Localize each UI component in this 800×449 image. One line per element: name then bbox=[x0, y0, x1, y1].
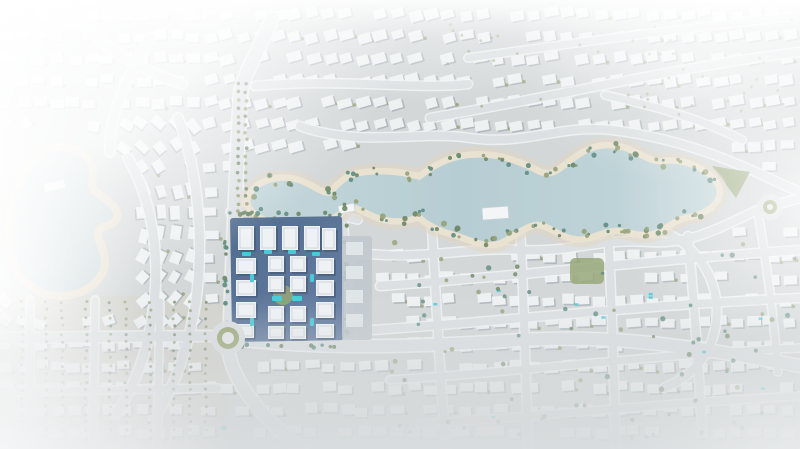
tree-icon bbox=[571, 163, 576, 168]
tree-icon bbox=[713, 178, 716, 181]
tree-icon bbox=[205, 340, 208, 343]
tree-icon bbox=[148, 421, 151, 424]
tree-icon bbox=[707, 178, 713, 184]
roundabout-southwest bbox=[211, 321, 245, 355]
tree-icon bbox=[544, 172, 549, 177]
tree-icon bbox=[656, 230, 661, 235]
villa bbox=[477, 293, 493, 305]
tree-icon bbox=[296, 212, 300, 216]
annex-villa bbox=[346, 314, 363, 327]
tree-icon bbox=[327, 190, 331, 194]
tree-icon bbox=[173, 357, 176, 360]
tree-icon bbox=[680, 372, 684, 376]
tree-icon bbox=[205, 308, 208, 311]
villa bbox=[626, 318, 643, 329]
tree-icon bbox=[84, 404, 87, 407]
villa bbox=[373, 426, 389, 438]
tree-icon bbox=[279, 344, 283, 348]
tree-icon bbox=[205, 301, 208, 304]
tree-icon bbox=[109, 325, 112, 328]
villa-pool bbox=[433, 303, 437, 306]
tree-icon bbox=[61, 365, 64, 368]
villa bbox=[627, 7, 642, 20]
tree-icon bbox=[236, 186, 240, 190]
tree-icon bbox=[45, 324, 48, 327]
villa bbox=[117, 360, 131, 370]
tree-icon bbox=[173, 324, 176, 327]
tree-icon bbox=[332, 192, 336, 196]
tree-icon bbox=[172, 388, 175, 391]
villa bbox=[34, 29, 48, 41]
villa bbox=[187, 97, 201, 109]
tree-icon bbox=[451, 233, 456, 238]
tree-icon bbox=[172, 317, 175, 320]
tree-icon bbox=[474, 238, 477, 241]
tree-icon bbox=[21, 356, 24, 359]
tree-icon bbox=[479, 39, 482, 42]
tree-icon bbox=[629, 435, 634, 440]
tree-icon bbox=[613, 141, 618, 146]
villa bbox=[732, 227, 748, 238]
tree-icon bbox=[693, 168, 697, 172]
villa bbox=[575, 7, 590, 20]
villa bbox=[70, 55, 84, 67]
tree-icon bbox=[435, 227, 439, 231]
tree-icon bbox=[188, 381, 191, 384]
tree-icon bbox=[342, 206, 347, 211]
villa bbox=[391, 427, 405, 439]
tree-icon bbox=[606, 230, 609, 233]
tree-icon bbox=[237, 115, 241, 119]
tree-icon bbox=[501, 362, 506, 367]
tree-icon bbox=[549, 171, 552, 174]
tree-icon bbox=[21, 308, 24, 311]
tree-icon bbox=[109, 421, 112, 424]
villa bbox=[205, 187, 219, 199]
tree-icon bbox=[108, 349, 111, 352]
tree-icon bbox=[487, 390, 491, 394]
tree-icon bbox=[148, 301, 151, 304]
tree-icon bbox=[149, 309, 152, 312]
villa bbox=[49, 429, 66, 440]
tree-icon bbox=[109, 333, 112, 336]
tree-icon bbox=[496, 420, 500, 424]
tree-icon bbox=[500, 309, 504, 313]
annex-villa bbox=[346, 266, 363, 279]
villa bbox=[101, 74, 115, 84]
villa bbox=[460, 10, 474, 23]
tree-icon bbox=[541, 414, 547, 420]
villa bbox=[169, 404, 183, 416]
tree-icon bbox=[61, 404, 64, 407]
tree-icon bbox=[84, 308, 87, 311]
tree-icon bbox=[654, 157, 658, 161]
tree-icon bbox=[506, 162, 511, 167]
tree-icon bbox=[60, 429, 63, 432]
tree-icon bbox=[61, 396, 64, 399]
tree-icon bbox=[173, 301, 176, 304]
villa bbox=[50, 33, 64, 43]
villa bbox=[407, 359, 423, 371]
tree-icon bbox=[188, 317, 191, 320]
tree-icon bbox=[45, 372, 48, 375]
tree-icon bbox=[173, 364, 176, 367]
tree-icon bbox=[542, 221, 545, 224]
villa bbox=[371, 381, 386, 393]
cluster-pool bbox=[272, 296, 282, 301]
tree-icon bbox=[44, 300, 47, 303]
tree-icon bbox=[539, 98, 542, 101]
tree-icon bbox=[515, 264, 520, 269]
tree-icon bbox=[723, 329, 727, 333]
tree-icon bbox=[627, 94, 630, 97]
tree-icon bbox=[793, 257, 797, 261]
tree-icon bbox=[204, 332, 207, 335]
tree-icon bbox=[516, 52, 519, 55]
tree-icon bbox=[597, 50, 600, 53]
tree-icon bbox=[188, 324, 191, 327]
tree-icon bbox=[238, 212, 243, 217]
tree-icon bbox=[750, 85, 753, 88]
tree-icon bbox=[578, 43, 581, 46]
tree-icon bbox=[418, 210, 421, 213]
villa bbox=[271, 359, 288, 371]
tree-icon bbox=[44, 413, 47, 416]
tree-icon bbox=[188, 300, 191, 303]
tree-icon bbox=[45, 357, 48, 360]
tree-icon bbox=[85, 340, 88, 343]
tree-icon bbox=[608, 17, 611, 20]
tree-icon bbox=[108, 301, 111, 304]
tree-icon bbox=[108, 396, 111, 399]
tree-icon bbox=[500, 158, 504, 162]
villa bbox=[731, 319, 745, 330]
tree-icon bbox=[149, 365, 152, 368]
tree-icon bbox=[20, 381, 23, 384]
villa bbox=[137, 404, 150, 416]
tree-icon bbox=[108, 388, 111, 391]
tree-icon bbox=[109, 405, 112, 408]
villa bbox=[560, 97, 576, 111]
tree-icon bbox=[780, 260, 784, 264]
tree-icon bbox=[284, 212, 288, 216]
tree-icon bbox=[506, 229, 509, 232]
tree-icon bbox=[702, 172, 705, 175]
tree-icon bbox=[61, 373, 64, 376]
tree-icon bbox=[61, 324, 64, 327]
tree-icon bbox=[172, 349, 175, 352]
tree-icon bbox=[259, 207, 263, 211]
villa bbox=[170, 96, 184, 107]
tree-icon bbox=[740, 426, 744, 430]
tree-icon bbox=[582, 229, 587, 234]
cluster-pool bbox=[250, 274, 254, 282]
tree-icon bbox=[646, 93, 649, 96]
tree-icon bbox=[60, 413, 63, 416]
road bbox=[255, 83, 468, 86]
annex-villa bbox=[346, 242, 363, 255]
tree-icon bbox=[85, 349, 88, 352]
tree-icon bbox=[457, 235, 460, 238]
tree-icon bbox=[422, 313, 426, 317]
tree-icon bbox=[148, 348, 151, 351]
tree-icon bbox=[462, 426, 466, 430]
tree-icon bbox=[189, 420, 192, 423]
villa bbox=[359, 425, 374, 437]
tree-icon bbox=[172, 428, 175, 431]
tree-icon bbox=[148, 396, 151, 399]
tree-icon bbox=[720, 253, 724, 257]
villa-pool bbox=[759, 317, 763, 320]
tree-icon bbox=[646, 98, 649, 101]
tree-icon bbox=[574, 403, 578, 407]
tree-icon bbox=[484, 157, 488, 161]
villa bbox=[784, 275, 799, 286]
villa bbox=[0, 99, 13, 110]
tree-icon bbox=[482, 276, 485, 279]
tree-icon bbox=[390, 370, 394, 374]
tree-icon bbox=[446, 62, 449, 65]
tree-icon bbox=[676, 158, 680, 162]
tree-icon bbox=[698, 214, 704, 220]
tree-icon bbox=[149, 324, 152, 327]
tree-icon bbox=[659, 387, 665, 393]
tree-icon bbox=[612, 308, 616, 312]
tree-icon bbox=[452, 29, 455, 32]
tree-icon bbox=[662, 230, 667, 235]
tree-icon bbox=[189, 309, 192, 312]
villa bbox=[86, 78, 99, 88]
tree-icon bbox=[490, 36, 493, 39]
villa bbox=[186, 33, 201, 43]
tree-icon bbox=[754, 349, 758, 353]
tree-icon bbox=[60, 301, 63, 304]
tree-icon bbox=[60, 389, 63, 392]
tree-icon bbox=[45, 396, 48, 399]
tree-icon bbox=[605, 374, 610, 379]
tree-icon bbox=[726, 100, 729, 103]
tree-icon bbox=[578, 378, 582, 382]
tree-icon bbox=[244, 82, 248, 86]
tree-icon bbox=[755, 78, 758, 81]
tree-icon bbox=[205, 405, 208, 408]
tree-icon bbox=[204, 317, 207, 320]
tree-icon bbox=[245, 99, 249, 103]
tree-icon bbox=[84, 357, 87, 360]
tree-icon bbox=[84, 325, 87, 328]
tree-icon bbox=[204, 372, 207, 375]
villa bbox=[459, 383, 474, 393]
villa bbox=[168, 206, 180, 222]
tree-icon bbox=[188, 357, 191, 360]
tree-icon bbox=[320, 343, 323, 346]
tree-icon bbox=[421, 300, 425, 304]
tree-icon bbox=[417, 322, 421, 326]
villa bbox=[82, 100, 97, 110]
tree-icon bbox=[237, 121, 241, 125]
tree-icon bbox=[109, 317, 112, 320]
tree-icon bbox=[21, 429, 24, 432]
tree-icon bbox=[385, 219, 388, 222]
villa bbox=[1, 428, 14, 439]
tree-icon bbox=[172, 308, 175, 311]
tree-icon bbox=[109, 372, 112, 375]
tree-icon bbox=[244, 123, 248, 127]
tree-icon bbox=[402, 378, 406, 382]
tree-icon bbox=[85, 300, 88, 303]
tree-icon bbox=[244, 342, 249, 347]
tree-icon bbox=[651, 433, 655, 437]
villa bbox=[254, 428, 267, 439]
tree-icon bbox=[449, 23, 452, 26]
tree-icon bbox=[237, 203, 241, 207]
villa bbox=[185, 12, 201, 22]
tree-icon bbox=[648, 53, 651, 56]
tree-icon bbox=[21, 389, 24, 392]
annex-villa bbox=[346, 290, 363, 303]
tree-icon bbox=[60, 437, 63, 440]
cluster-pool bbox=[288, 250, 296, 254]
tree-icon bbox=[85, 381, 88, 384]
tree-icon bbox=[109, 429, 112, 432]
tree-icon bbox=[205, 325, 208, 328]
tree-icon bbox=[457, 155, 460, 158]
tree-icon bbox=[205, 428, 208, 431]
tree-icon bbox=[758, 56, 761, 59]
tree-icon bbox=[268, 174, 271, 177]
villa bbox=[392, 293, 409, 304]
tree-icon bbox=[701, 75, 704, 78]
tree-icon bbox=[109, 356, 112, 359]
tree-icon bbox=[526, 163, 531, 168]
tree-icon bbox=[454, 228, 458, 232]
tree-icon bbox=[149, 429, 152, 432]
tree-icon bbox=[189, 340, 192, 343]
tree-icon bbox=[583, 404, 587, 408]
tree-icon bbox=[492, 236, 497, 241]
tree-icon bbox=[619, 327, 623, 331]
tree-icon bbox=[567, 164, 570, 167]
tree-icon bbox=[61, 381, 64, 384]
tree-icon bbox=[44, 404, 47, 407]
tree-icon bbox=[603, 223, 608, 228]
villa bbox=[119, 33, 133, 45]
tree-icon bbox=[172, 373, 175, 376]
villa bbox=[442, 293, 456, 305]
villa bbox=[155, 204, 166, 220]
tree-icon bbox=[20, 405, 23, 408]
villa bbox=[137, 77, 153, 88]
villa bbox=[170, 223, 184, 240]
tree-icon bbox=[85, 372, 88, 375]
tree-icon bbox=[345, 223, 349, 227]
tree-icon bbox=[669, 39, 672, 42]
villa bbox=[474, 382, 490, 394]
tree-icon bbox=[108, 340, 111, 343]
tree-icon bbox=[732, 421, 736, 425]
tree-icon bbox=[20, 436, 23, 439]
tree-icon bbox=[730, 253, 735, 258]
tree-icon bbox=[108, 309, 111, 312]
tree-icon bbox=[173, 333, 176, 336]
tree-icon bbox=[484, 243, 489, 248]
villa bbox=[53, 406, 66, 418]
villa bbox=[37, 359, 50, 370]
tree-icon bbox=[593, 311, 598, 316]
tree-icon bbox=[253, 186, 259, 192]
tree-icon bbox=[349, 177, 354, 182]
tree-icon bbox=[244, 162, 248, 166]
tree-icon bbox=[408, 430, 411, 433]
tree-icon bbox=[149, 373, 152, 376]
tree-icon bbox=[21, 420, 24, 423]
tree-icon bbox=[537, 327, 541, 331]
tree-icon bbox=[236, 194, 240, 198]
tree-icon bbox=[443, 350, 446, 353]
tree-icon bbox=[84, 397, 87, 400]
tree-icon bbox=[188, 333, 191, 336]
tree-icon bbox=[21, 349, 24, 352]
tree-icon bbox=[222, 283, 227, 288]
tree-icon bbox=[690, 104, 693, 107]
tree-icon bbox=[21, 373, 24, 376]
tree-icon bbox=[630, 418, 634, 422]
villa bbox=[560, 428, 576, 439]
tree-icon bbox=[760, 411, 765, 416]
tree-icon bbox=[657, 224, 662, 229]
tree-icon bbox=[628, 154, 631, 157]
tree-icon bbox=[354, 199, 359, 204]
tree-icon bbox=[188, 397, 191, 400]
tree-icon bbox=[790, 18, 793, 21]
tree-icon bbox=[223, 242, 227, 246]
tree-icon bbox=[652, 335, 655, 338]
tree-icon bbox=[237, 161, 241, 165]
villa-pool bbox=[702, 351, 706, 354]
tree-icon bbox=[237, 130, 241, 134]
tree-icon bbox=[189, 365, 192, 368]
tree-icon bbox=[189, 349, 192, 352]
tree-icon bbox=[45, 308, 48, 311]
villa-pool bbox=[761, 387, 765, 390]
tree-icon bbox=[125, 429, 128, 432]
villa bbox=[782, 116, 796, 128]
tree-icon bbox=[60, 309, 63, 312]
villa bbox=[338, 385, 354, 395]
tree-icon bbox=[323, 211, 327, 215]
tree-icon bbox=[84, 316, 87, 319]
tree-icon bbox=[486, 265, 491, 270]
tree-icon bbox=[149, 357, 152, 360]
tree-icon bbox=[380, 213, 386, 219]
tree-icon bbox=[60, 317, 63, 320]
tree-icon bbox=[124, 324, 127, 327]
tree-icon bbox=[613, 150, 616, 153]
villa bbox=[338, 428, 354, 438]
tree-icon bbox=[510, 397, 514, 401]
tree-icon bbox=[513, 272, 517, 276]
villa bbox=[627, 424, 641, 436]
tree-icon bbox=[237, 138, 241, 142]
tree-icon bbox=[224, 246, 228, 250]
tree-icon bbox=[725, 334, 730, 339]
tree-icon bbox=[125, 317, 128, 320]
tree-icon bbox=[236, 171, 240, 175]
tree-icon bbox=[61, 356, 64, 359]
tree-icon bbox=[204, 436, 207, 439]
masterplan-scene-canvas bbox=[0, 0, 800, 449]
tree-icon bbox=[417, 283, 421, 287]
